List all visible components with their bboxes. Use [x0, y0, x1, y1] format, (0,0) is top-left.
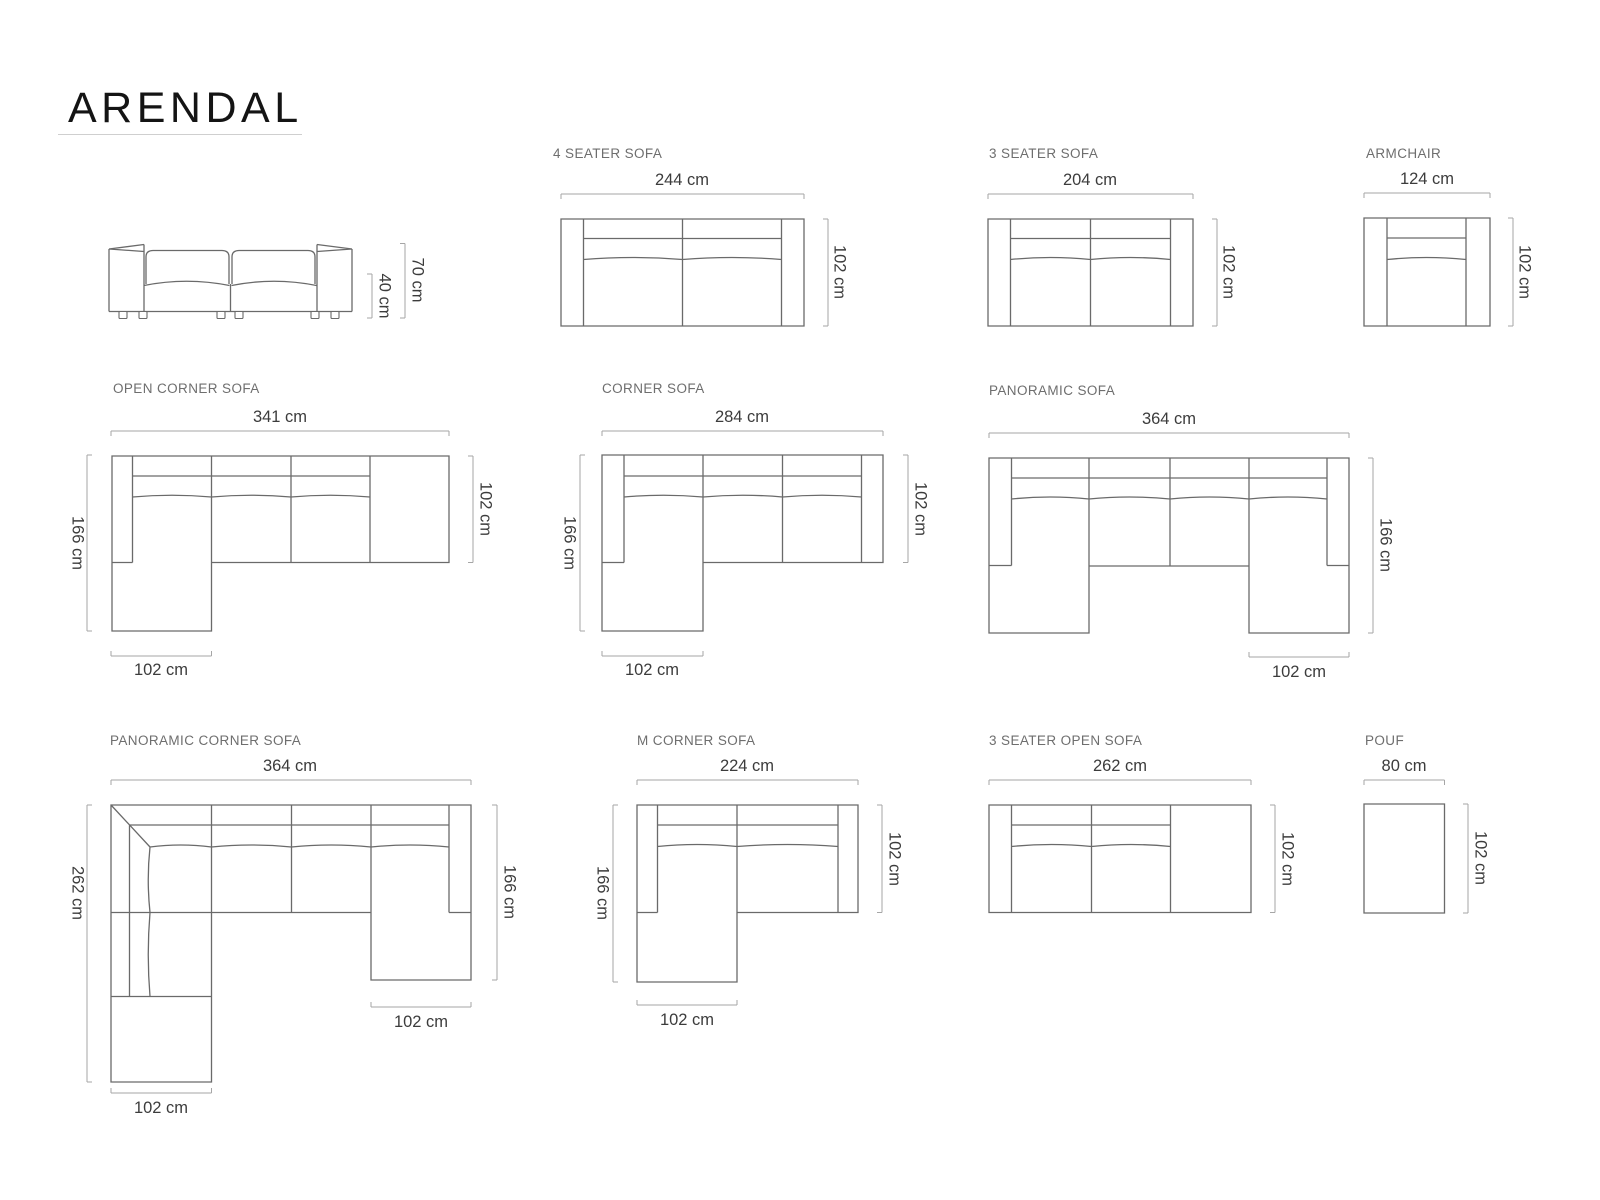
panoramic-chaise-dim: 102 cm — [1272, 663, 1326, 682]
line-art — [0, 0, 1600, 1200]
open-corner-sofa-drawing — [87, 431, 473, 656]
three-seater-open-label: 3 SEATER OPEN SOFA — [989, 733, 1142, 748]
three-seater-open-width-dim: 262 cm — [1093, 757, 1147, 776]
corner-height-dim: 166 cm — [560, 516, 579, 570]
m-corner-depth-dim: 102 cm — [885, 832, 904, 886]
m-corner-height-dim: 166 cm — [593, 866, 612, 920]
panoramic-sofa-drawing — [989, 433, 1373, 657]
pouf-width-dim: 80 cm — [1382, 757, 1427, 776]
open-corner-label: OPEN CORNER SOFA — [113, 381, 260, 396]
panoramic-corner-width-dim: 364 cm — [263, 757, 317, 776]
open-corner-width-dim: 341 cm — [253, 408, 307, 427]
panoramic-corner-height-left-dim: 262 cm — [68, 866, 87, 920]
panoramic-corner-chaise-right-dim: 102 cm — [394, 1013, 448, 1032]
corner-sofa-drawing — [580, 431, 908, 656]
corner-chaise-dim: 102 cm — [625, 661, 679, 680]
sofa-front-view-drawing — [109, 244, 405, 319]
three-seater-open-depth-dim: 102 cm — [1278, 832, 1297, 886]
m-corner-chaise-dim: 102 cm — [660, 1011, 714, 1030]
three-seater-width-dim: 204 cm — [1063, 171, 1117, 190]
front-view-seat-height-dim: 40 cm — [375, 274, 394, 319]
four-seater-depth-dim: 102 cm — [830, 245, 849, 299]
panoramic-corner-sofa-drawing — [87, 780, 497, 1093]
arendal-spec-sheet: ARENDAL — [0, 0, 1600, 1200]
three-seater-drawing — [988, 194, 1217, 326]
three-seater-depth-dim: 102 cm — [1219, 245, 1238, 299]
open-corner-chaise-dim: 102 cm — [134, 661, 188, 680]
armchair-depth-dim: 102 cm — [1515, 245, 1534, 299]
open-corner-height-dim: 166 cm — [68, 516, 87, 570]
four-seater-width-dim: 244 cm — [655, 171, 709, 190]
four-seater-label: 4 SEATER SOFA — [553, 146, 662, 161]
panoramic-height-dim: 166 cm — [1376, 518, 1395, 572]
armchair-drawing — [1364, 193, 1513, 326]
open-corner-depth-dim: 102 cm — [476, 482, 495, 536]
m-corner-width-dim: 224 cm — [720, 757, 774, 776]
panoramic-corner-chaise-bottom-dim: 102 cm — [134, 1099, 188, 1118]
panoramic-corner-height-right-dim: 166 cm — [500, 865, 519, 919]
pouf-drawing — [1364, 780, 1468, 913]
three-seater-label: 3 SEATER SOFA — [989, 146, 1098, 161]
armchair-label: ARMCHAIR — [1366, 146, 1441, 161]
panoramic-width-dim: 364 cm — [1142, 410, 1196, 429]
corner-depth-dim: 102 cm — [911, 482, 930, 536]
pouf-label: POUF — [1365, 733, 1404, 748]
panoramic-corner-label: PANORAMIC CORNER SOFA — [110, 733, 301, 748]
pouf-depth-dim: 102 cm — [1471, 831, 1490, 885]
three-seater-open-drawing — [989, 780, 1275, 913]
armchair-width-dim: 124 cm — [1400, 170, 1454, 189]
panoramic-label: PANORAMIC SOFA — [989, 383, 1115, 398]
corner-label: CORNER SOFA — [602, 381, 705, 396]
m-corner-label: M CORNER SOFA — [637, 733, 755, 748]
four-seater-drawing — [561, 194, 828, 326]
front-view-total-height-dim: 70 cm — [408, 258, 427, 303]
m-corner-sofa-drawing — [613, 780, 882, 1005]
corner-width-dim: 284 cm — [715, 408, 769, 427]
